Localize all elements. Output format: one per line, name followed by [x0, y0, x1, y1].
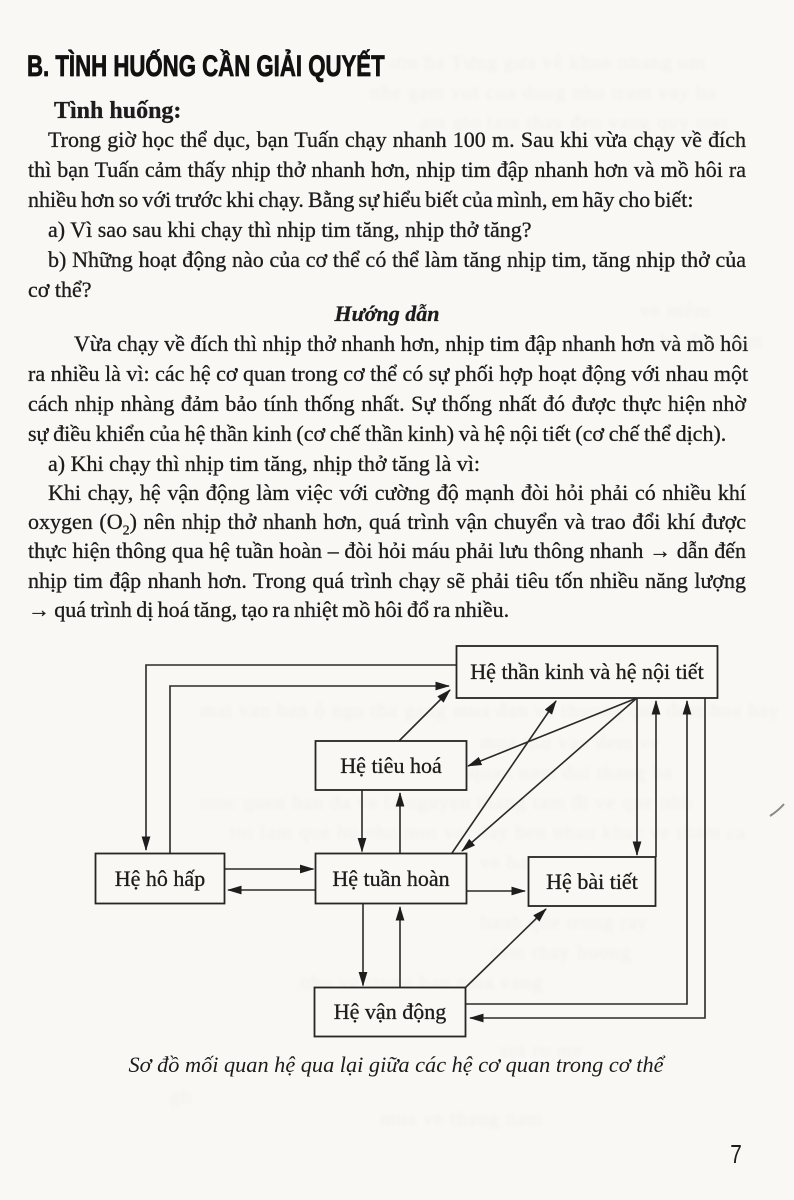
- svg-text:Hệ hô hấp: Hệ hô hấp: [115, 866, 205, 891]
- svg-text:Hệ bài tiết: Hệ bài tiết: [546, 869, 638, 894]
- svg-text:Hệ tuần hoàn: Hệ tuần hoàn: [332, 866, 449, 891]
- svg-text:Hệ tiêu hoá: Hệ tiêu hoá: [340, 753, 442, 778]
- svg-text:Hệ thần kinh và hệ nội tiết: Hệ thần kinh và hệ nội tiết: [470, 659, 703, 684]
- svg-text:Hệ vận động: Hệ vận động: [334, 999, 446, 1024]
